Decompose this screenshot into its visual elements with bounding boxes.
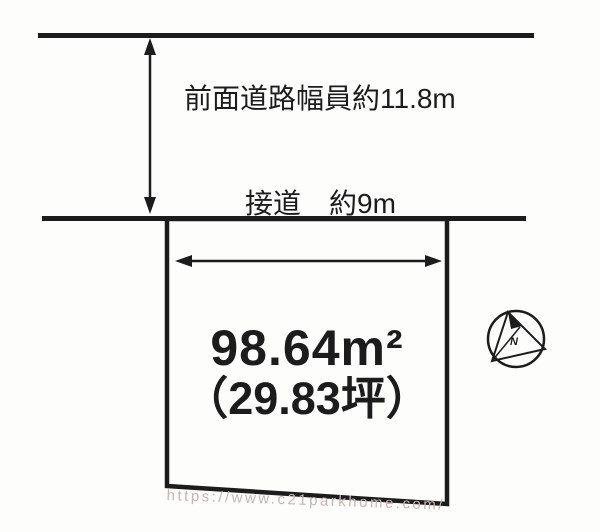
land-plot-diagram: N 前面道路幅員約11.8m 接道 約9m 98.64m² （29.83坪） h…	[0, 0, 600, 532]
compass-north-label: N	[510, 336, 519, 348]
road-width-label: 前面道路幅員約11.8m	[184, 77, 456, 117]
plot-area-block: 98.64m² （29.83坪）	[167, 322, 447, 424]
frontage-arrow	[175, 255, 442, 267]
road-top-line	[38, 33, 534, 38]
road-width-arrow	[144, 38, 156, 214]
compass-needle-tip	[508, 312, 522, 329]
frontage-label: 接道 約9m	[245, 182, 396, 222]
plot-area-tsubo: （29.83坪）	[167, 374, 447, 424]
compass-icon: N	[488, 311, 545, 367]
plot-area-sqm: 98.64m²	[167, 322, 447, 374]
